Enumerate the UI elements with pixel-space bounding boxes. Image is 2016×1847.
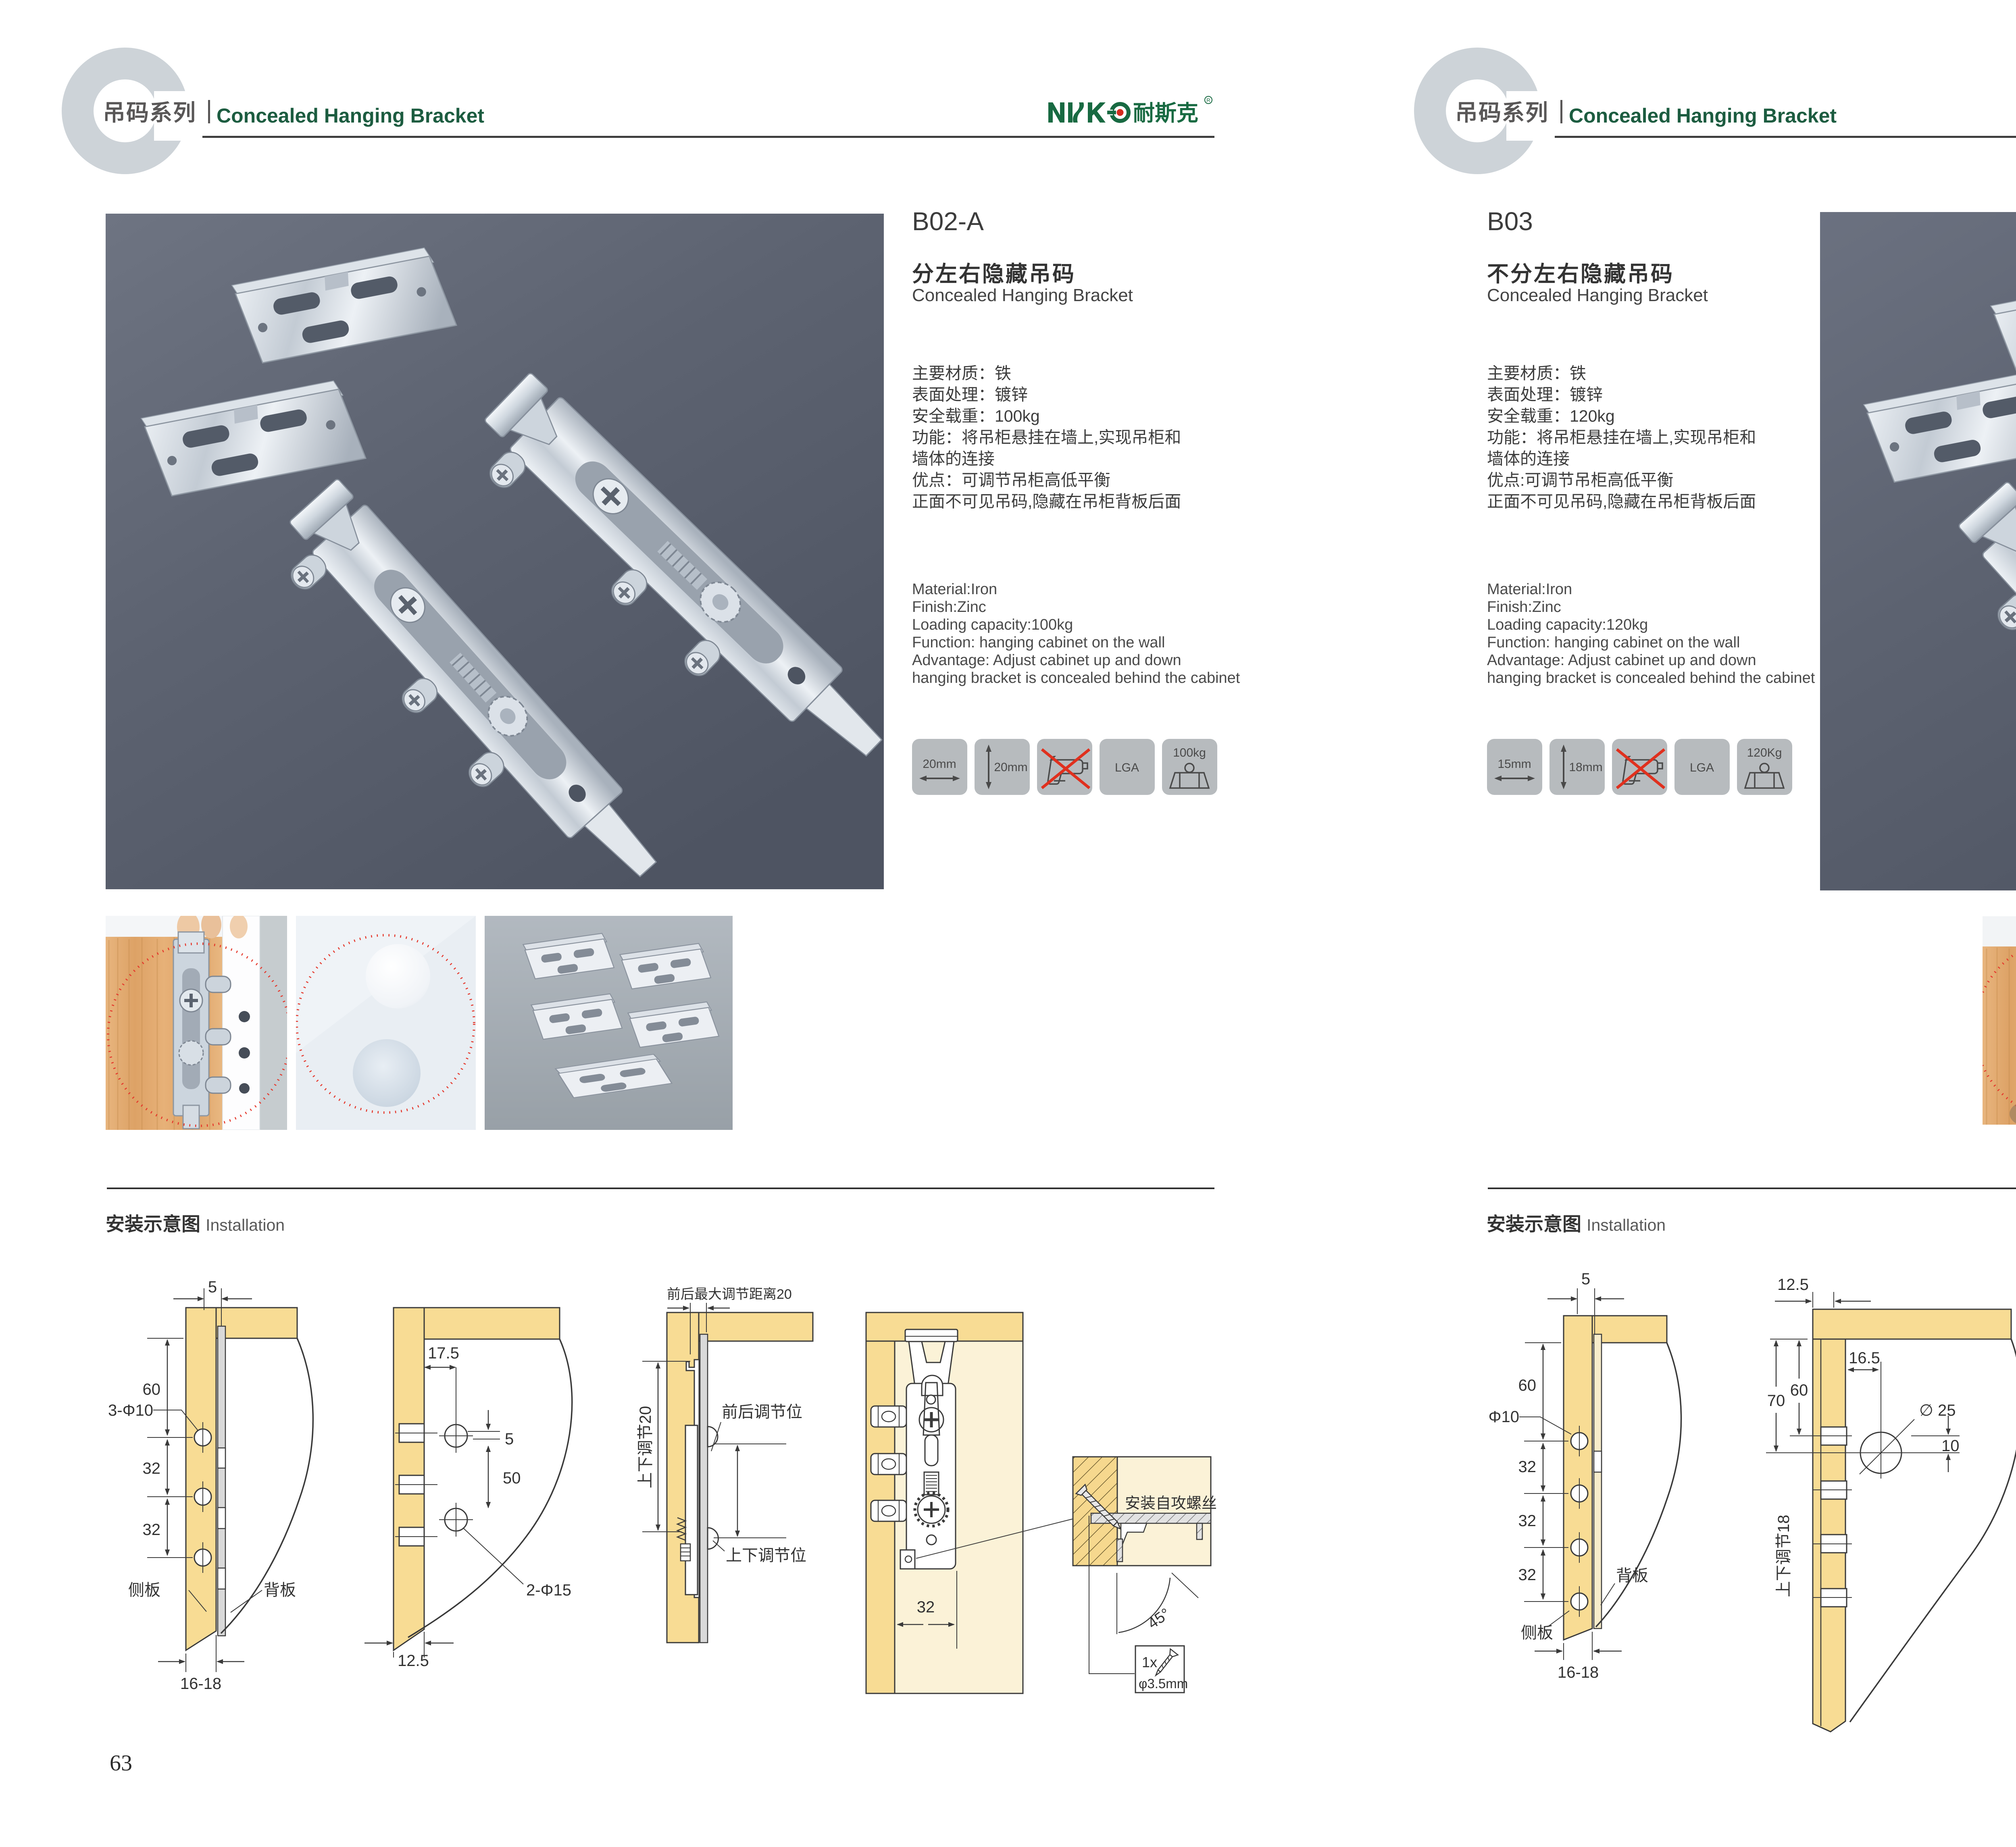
svg-text:上下调节20: 上下调节20 [637, 1406, 654, 1489]
svg-text:12.5: 12.5 [1777, 1276, 1809, 1294]
svg-text:3-Φ10: 3-Φ10 [108, 1402, 153, 1419]
svg-text:32: 32 [1518, 1566, 1537, 1584]
svg-text:32: 32 [1518, 1512, 1537, 1530]
svg-text:LGA: LGA [1115, 761, 1139, 774]
svg-text:背板: 背板 [1616, 1567, 1648, 1585]
svg-text:5: 5 [505, 1430, 514, 1448]
svg-text:上下调节18: 上下调节18 [1775, 1515, 1793, 1597]
svg-text:16-18: 16-18 [180, 1675, 221, 1693]
svg-text:18mm: 18mm [1569, 761, 1602, 774]
svg-text:5: 5 [208, 1278, 217, 1296]
svg-text:侧板: 侧板 [128, 1581, 160, 1599]
svg-text:10: 10 [1941, 1437, 1960, 1455]
svg-text:1x: 1x [1142, 1654, 1157, 1670]
svg-text:背板: 背板 [264, 1581, 296, 1599]
svg-text:60: 60 [1790, 1381, 1808, 1399]
svg-text:17.5: 17.5 [428, 1344, 459, 1362]
svg-text:2-Φ15: 2-Φ15 [526, 1581, 571, 1599]
svg-text:16-18: 16-18 [1558, 1664, 1599, 1681]
svg-text:安装自攻螺丝: 安装自攻螺丝 [1125, 1495, 1217, 1512]
svg-text:120Kg: 120Kg [1747, 746, 1782, 759]
svg-text:12.5: 12.5 [398, 1652, 429, 1670]
svg-text:前后最大调节距离20: 前后最大调节距离20 [667, 1287, 792, 1302]
svg-text:32: 32 [143, 1521, 161, 1539]
svg-text:16.5: 16.5 [1849, 1349, 1880, 1367]
svg-text:70: 70 [1767, 1392, 1785, 1410]
svg-text:32: 32 [1518, 1458, 1537, 1476]
svg-text:50: 50 [503, 1469, 521, 1487]
svg-text:上下调节位: 上下调节位 [726, 1547, 806, 1564]
svg-text:15mm: 15mm [1497, 757, 1531, 771]
svg-text:R: R [1206, 97, 1210, 103]
svg-text:LGA: LGA [1690, 761, 1714, 774]
svg-text:60: 60 [143, 1381, 161, 1398]
svg-text:100kg: 100kg [1173, 746, 1206, 759]
svg-text:20mm: 20mm [923, 757, 956, 771]
svg-text:5: 5 [1581, 1270, 1590, 1288]
svg-text:Φ10: Φ10 [1489, 1408, 1519, 1426]
svg-text:φ3.5mm: φ3.5mm [1139, 1676, 1188, 1691]
svg-text:60: 60 [1518, 1377, 1537, 1394]
svg-text:∅ 25: ∅ 25 [1919, 1402, 1956, 1419]
svg-text:32: 32 [143, 1460, 161, 1477]
svg-text:45°: 45° [1145, 1605, 1173, 1632]
svg-text:耐斯克: 耐斯克 [1133, 101, 1198, 125]
svg-text:前后调节位: 前后调节位 [722, 1403, 802, 1421]
svg-text:32: 32 [917, 1598, 935, 1616]
svg-text:20mm: 20mm [994, 761, 1027, 774]
svg-text:侧板: 侧板 [1521, 1624, 1553, 1642]
